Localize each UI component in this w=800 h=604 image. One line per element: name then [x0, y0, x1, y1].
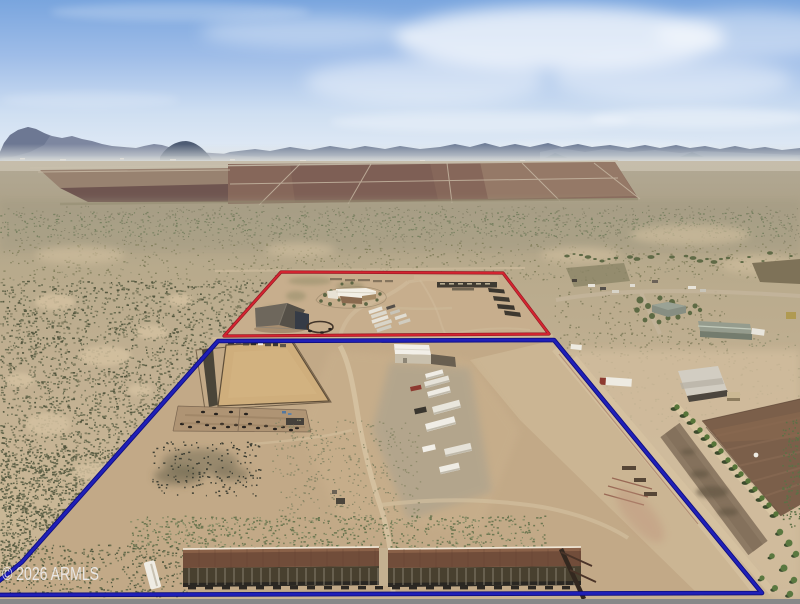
svg-text:© 2026 ARMLS: © 2026 ARMLS: [2, 564, 99, 584]
